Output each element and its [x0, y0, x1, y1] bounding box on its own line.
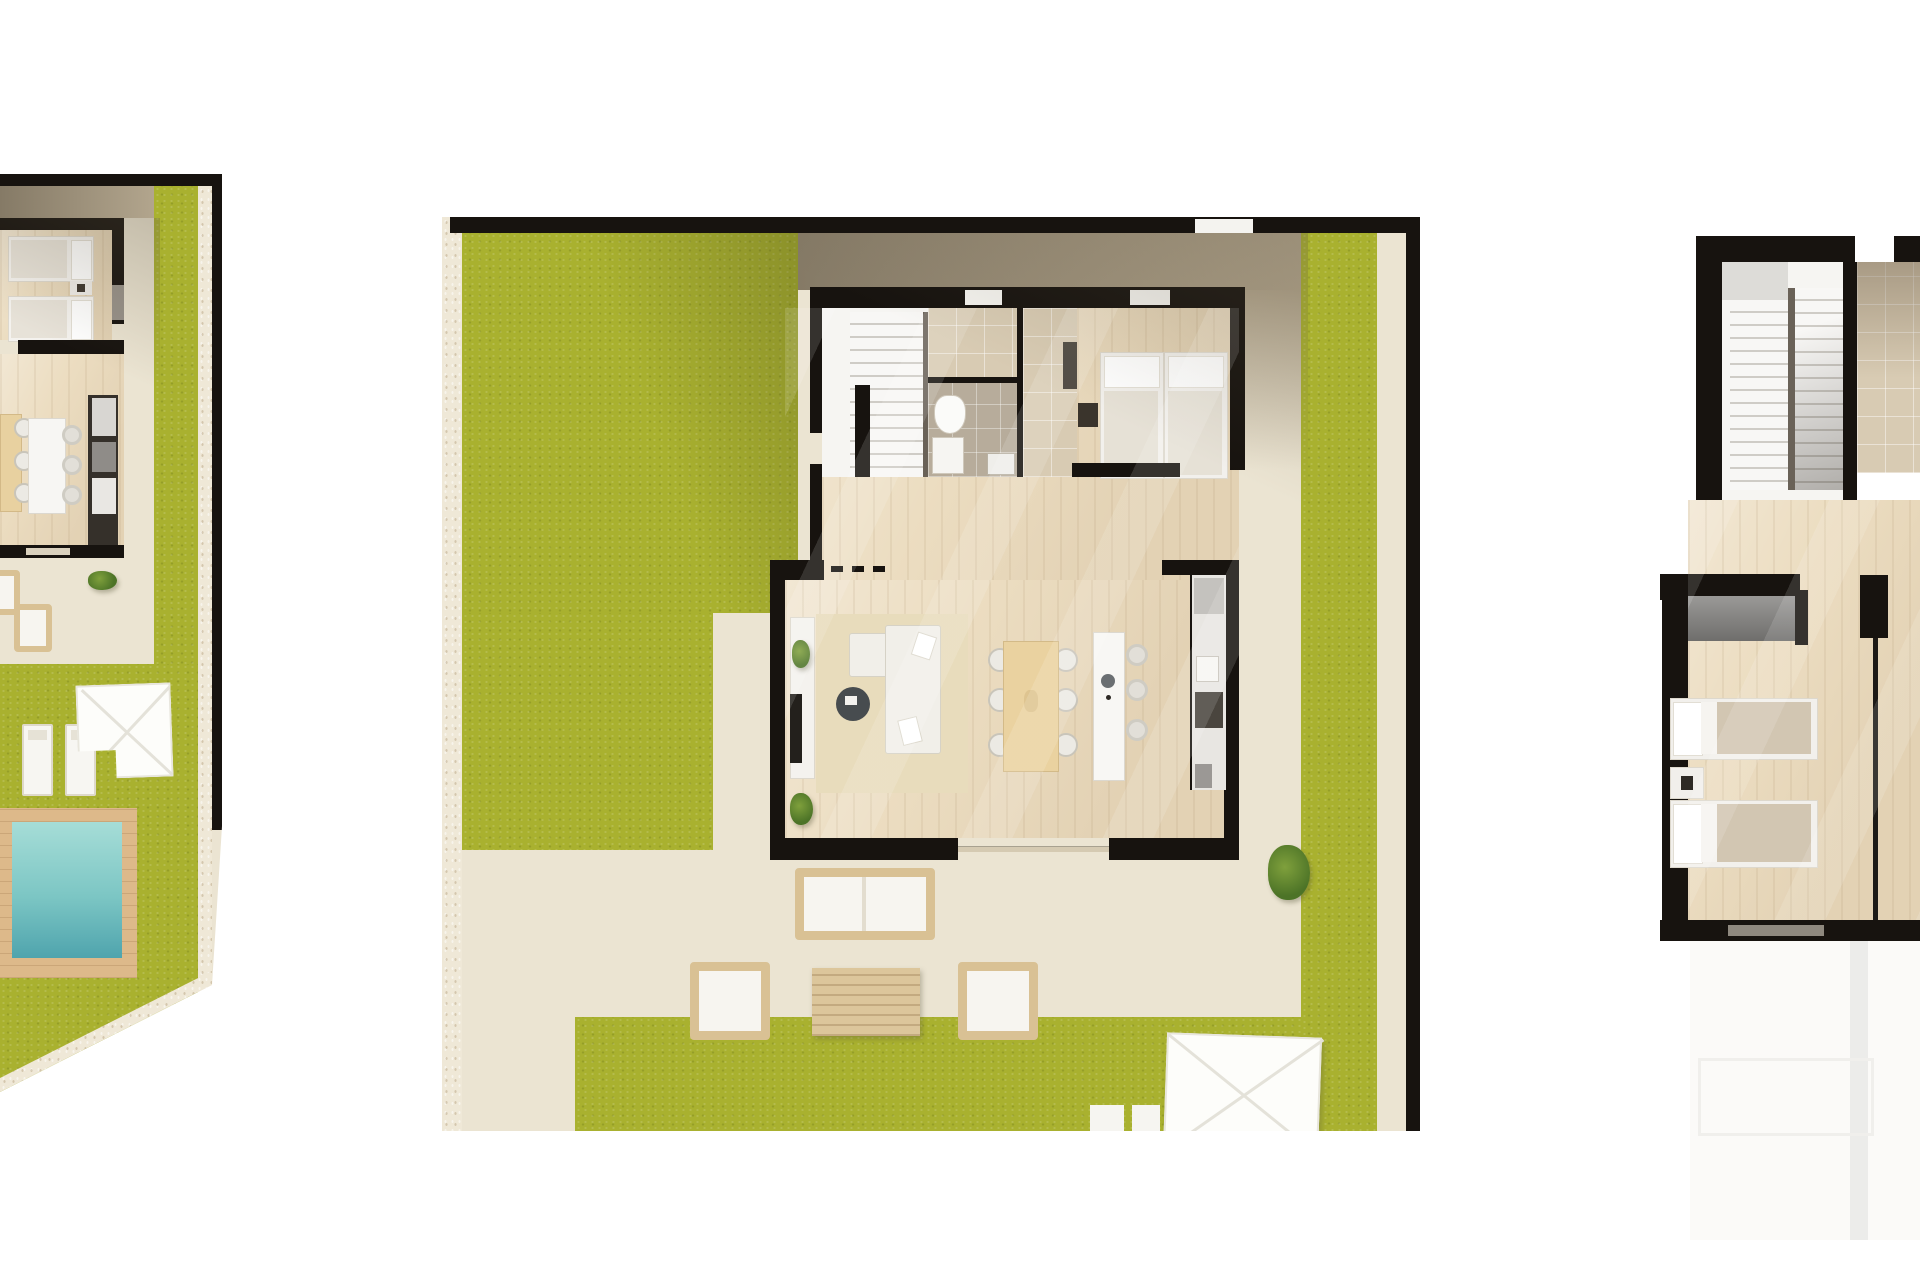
left-kitchen-counter [88, 395, 118, 545]
up-bed-2-pillow [1673, 804, 1703, 864]
main-bathroom-divider-wall [928, 377, 1017, 383]
main-path-right [1377, 233, 1406, 1131]
main-threshold-dashes [831, 566, 885, 572]
left-bedroom-window [112, 285, 124, 320]
main-stair-side-wall [855, 385, 870, 477]
left-garden-path [198, 186, 212, 985]
main-bedroom-right-wall [1230, 290, 1245, 470]
up-nightstand [1670, 767, 1704, 799]
main-round-coffee-table [836, 687, 870, 721]
main-left-wall-upper-2 [810, 464, 822, 560]
main-parasol [1163, 1032, 1322, 1131]
main-toilet [934, 395, 966, 434]
main-outdoor-loveseat [795, 868, 935, 940]
main-outdoor-armchair-right [958, 962, 1038, 1040]
main-sofa-pillow-2 [897, 716, 923, 746]
main-terrace-channel [1239, 290, 1301, 470]
main-bottom-glass-door [958, 846, 1109, 852]
main-bottom-wall-seg-1 [770, 838, 958, 860]
main-plant-floor [790, 793, 813, 825]
left-pool-water [12, 822, 122, 958]
up-stair-stringer [1788, 288, 1795, 490]
up-bed-1-blanket [1717, 702, 1811, 754]
upper-floor-panel [1660, 228, 1920, 1240]
up-door-jamb [1860, 575, 1888, 638]
left-bedroom-bottom-wall [18, 340, 124, 354]
main-plant-shelf [792, 640, 810, 668]
main-island-tap [1106, 695, 1111, 700]
up-bed-2-blanket [1717, 804, 1811, 862]
main-dining-table [1003, 641, 1059, 772]
up-bed-1-sheet [1701, 702, 1717, 754]
main-bed-1 [1100, 352, 1164, 479]
main-house-top-window-1 [965, 290, 1002, 305]
left-bed-1-pillow [71, 240, 92, 280]
main-island-sink [1101, 674, 1115, 688]
main-bar-stool-2 [1126, 679, 1148, 701]
left-fridge [92, 398, 116, 436]
main-patio-plant [1268, 845, 1310, 900]
main-bottom-wall-seg-2 [1109, 838, 1239, 860]
floor-plan-rendering [0, 0, 1920, 1280]
main-lawn-right-strip [1301, 233, 1377, 1131]
main-bedroom-bottom-wall [1072, 463, 1180, 477]
left-right-wall [212, 174, 222, 830]
main-oven [1195, 764, 1212, 788]
up-terrace-outline [1698, 1058, 1874, 1136]
main-cooktop [1195, 692, 1223, 728]
left-bed-2-pillow [71, 300, 92, 340]
main-bed-2-pillow [1168, 356, 1224, 388]
left-bottom-wall-door [26, 548, 70, 555]
main-house-top-window-2 [1130, 290, 1170, 305]
left-terrace-band [0, 186, 154, 218]
main-shower-tray [932, 437, 964, 474]
main-tv [790, 694, 802, 763]
main-lawn-column [462, 613, 713, 850]
main-fridge [1194, 578, 1224, 614]
main-sofa-body [885, 625, 941, 754]
main-counter-sink [1196, 656, 1219, 682]
main-house-top-wall [810, 287, 1245, 308]
up-stair-right-wall [1843, 262, 1857, 500]
main-bed-1-pillow [1104, 356, 1160, 388]
up-bed-1-pillow [1673, 702, 1703, 756]
up-bed-2-sheet [1701, 804, 1717, 862]
up-tiled-hall-shadow [1857, 262, 1920, 473]
up-stair-flight-right [1795, 288, 1843, 490]
main-left-wall-lower [770, 580, 785, 838]
left-sun-lounger-1-pillow [28, 730, 47, 740]
left-kitchen-sink [92, 478, 116, 514]
main-sofa-pillow-1 [911, 631, 937, 660]
up-top-wall-gap [1855, 232, 1894, 262]
left-bedroom-top-wall [0, 218, 124, 230]
main-lawn-shade [462, 233, 798, 613]
main-right-wall [1406, 217, 1420, 1131]
main-left-boundary [442, 217, 462, 1131]
left-bed-2 [8, 296, 94, 342]
left-nightstand [70, 281, 92, 295]
main-slatted-table [812, 968, 920, 1036]
main-kitchen-counter [1190, 575, 1226, 790]
left-kitchen-island [28, 418, 66, 514]
left-lawn-strip [154, 186, 198, 664]
main-bar-stool-3 [1126, 719, 1148, 741]
main-dressing-floor [1023, 308, 1077, 477]
main-left-wall-upper [810, 308, 822, 433]
left-outdoor-lounger [14, 604, 52, 652]
left-bed-1 [8, 236, 94, 282]
main-terrace-band [798, 233, 1301, 290]
main-coffee-table-magazine [845, 696, 857, 705]
main-kitchen-top-wall [1162, 560, 1239, 575]
left-top-wall [0, 174, 222, 186]
up-stair-landing [1722, 262, 1788, 300]
main-kitchen-island [1093, 632, 1125, 781]
up-bed-2 [1670, 800, 1818, 868]
main-top-wall [450, 217, 1420, 233]
left-bar-stool-1 [62, 425, 82, 445]
main-lawn-upper [462, 233, 798, 613]
up-wardrobe [1673, 596, 1795, 641]
main-right-inner-wall [1224, 575, 1239, 860]
up-bed-1 [1670, 698, 1818, 760]
main-bar-stool-1 [1126, 644, 1148, 666]
left-bar-stool-3 [62, 485, 82, 505]
main-outdoor-armchair-left [690, 962, 770, 1040]
main-villa-panel [442, 217, 1420, 1131]
main-outdoor-kitchen-2 [1132, 1105, 1160, 1131]
left-nightstand-decor [77, 284, 85, 292]
up-stair-flight-left [1730, 300, 1788, 490]
main-jog-wall [770, 560, 824, 580]
main-top-wall-window [1195, 219, 1253, 233]
main-table-centerpiece [1024, 690, 1038, 712]
left-bar-stool-2 [62, 455, 82, 475]
main-bath-upper-floor [928, 308, 1017, 382]
main-outdoor-kitchen-1 [1090, 1105, 1124, 1131]
up-nightstand-decor [1681, 776, 1693, 790]
main-nightstand [1078, 403, 1098, 427]
left-bed-2-blanket [11, 300, 67, 338]
left-sun-lounger-1 [22, 724, 53, 796]
up-open-door-line [1873, 638, 1878, 935]
left-bed-1-blanket [11, 240, 67, 278]
left-patio-plant [88, 571, 117, 590]
up-stair-flight-right-shadow [1795, 288, 1843, 490]
up-bottom-wall-window [1728, 925, 1824, 936]
left-cooktop [92, 442, 116, 472]
up-wardrobe-jamb [1795, 590, 1808, 645]
left-villa-panel [0, 174, 222, 1092]
up-tiled-hall [1857, 262, 1920, 473]
main-parasol-rib-1 [1168, 1033, 1321, 1131]
main-bed-2 [1164, 352, 1228, 479]
main-dressing-wardrobe [1063, 342, 1077, 389]
main-bath-sink [987, 453, 1015, 475]
main-loveseat-cushion-divider [862, 877, 866, 931]
